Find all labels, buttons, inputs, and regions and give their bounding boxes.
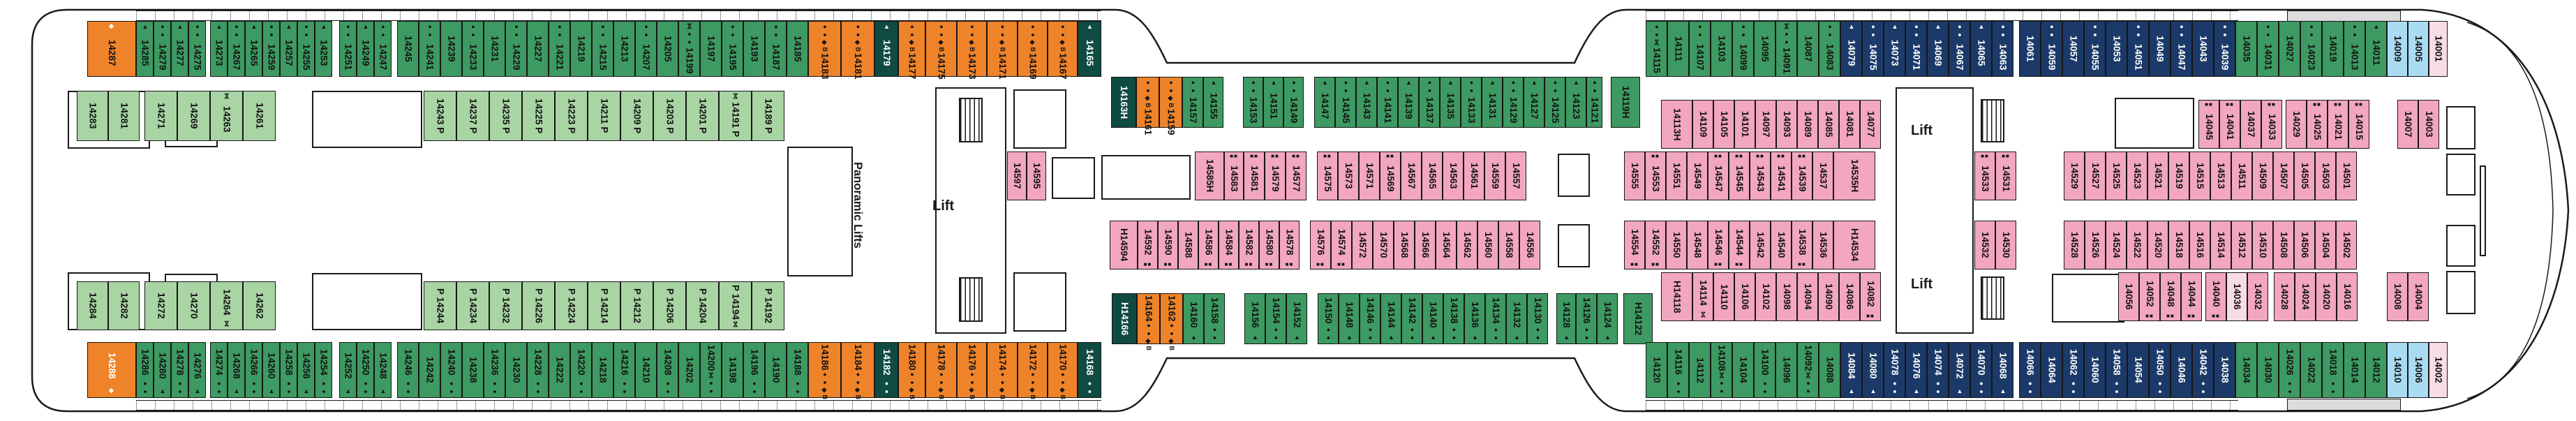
cabin-14116[interactable]: 14116●● [1667,342,1689,398]
cabin-14039[interactable]: ●●14039 [2214,21,2235,77]
cabin-14169[interactable]: ●●◆B14169 [1018,21,1048,77]
cabin-14531[interactable]: ■■14531 [1995,152,2016,200]
cabin-14134[interactable]: 14134●● [1485,293,1506,344]
cabin-14125[interactable]: ●●14125 [1544,77,1565,128]
cabin-14575[interactable]: ■■14575 [1317,152,1338,200]
cabin-14180[interactable]: 14180●●◆B [898,342,925,398]
cabin-14053[interactable]: 14053 [2106,21,2127,77]
cabin-14220[interactable]: 14220●● [570,342,592,398]
cabin-14277[interactable]: ▲14277 [171,21,188,77]
cabin-14101[interactable]: 14101 [1734,100,1755,149]
cabin-14131[interactable]: ▲14131 [1482,77,1503,128]
cabin-14153[interactable]: ●●14153 [1243,77,1263,128]
cabin-14032[interactable]: 14032 [2247,272,2268,321]
cabin-14010[interactable]: 14010 [2387,342,2408,398]
cabin-14283[interactable]: 14283 [77,91,108,141]
cabin-14578[interactable]: 14578■■ [1279,221,1300,269]
cabin-14272[interactable]: 14272 [144,281,177,330]
cabin-14278[interactable]: 14278●● [171,342,188,398]
cabin-14141[interactable]: ●●14141 [1377,77,1398,128]
cabin-14181[interactable]: ●●◆B14181 [841,21,874,77]
cabin-14164[interactable]: 14164●●◆B [1137,293,1160,344]
cabin-14022[interactable]: 14022 [2300,342,2322,398]
cabin-14573[interactable]: 14573 [1338,152,1359,200]
cabin-14099[interactable]: ●●14099 [1732,21,1754,77]
cabin-14216[interactable]: 14216●● [613,342,635,398]
cabin-14204[interactable]: P 14204 [686,281,719,330]
cabin-14120[interactable]: 14120 [1646,342,1667,398]
cabin-14148[interactable]: 14148▲ [1339,293,1360,344]
cabin-14244[interactable]: P 14244 [424,281,456,330]
cabin-14189[interactable]: 14189 P [752,91,784,141]
cabin-14071[interactable]: ●●14071 [1905,21,1927,77]
cabin-14588[interactable]: 14588 [1178,221,1198,269]
cabin-14562[interactable]: 14562 [1457,221,1477,269]
cabin-14583[interactable]: ■■14583 [1224,152,1244,200]
cabin-14188[interactable]: 14188●● [787,342,808,398]
cabin-14533[interactable]: ■■14533 [1974,152,1995,200]
cabin-14553[interactable]: ■■14553 [1645,152,1666,200]
cabin-14260[interactable]: 14260▲ [262,342,280,398]
cabin-14170[interactable]: 14170●●◆B [1048,342,1078,398]
cabin-14005[interactable]: 14005 [2408,21,2429,77]
cabin-14057[interactable]: 14057 [2062,21,2084,77]
cabin-14525[interactable]: 14525 [2106,152,2127,200]
cabin-14597[interactable]: 14597 [1007,152,1027,200]
cabin-14024[interactable]: 14024 [2295,272,2316,321]
cabin-14270[interactable]: 14270 [177,281,210,330]
cabin-14046[interactable]: 14046 [2171,342,2192,398]
cabin-14538[interactable]: 14538■■ [1792,221,1812,269]
cabin-14029[interactable]: 14029 [2286,100,2307,149]
cabin-14186[interactable]: 14186●●◆B [808,342,841,398]
cabin-14062[interactable]: 14062●● [2062,342,2084,398]
cabin-14228[interactable]: 14228●● [527,342,549,398]
cabin-14008[interactable]: 14008 [2387,272,2408,321]
cabin-14159[interactable]: ●●◆B14159 [1159,77,1182,128]
cabin-14173[interactable]: ●●◆B14173 [957,21,987,77]
cabin-14580[interactable]: 14580■■ [1259,221,1279,269]
cabin-14242[interactable]: 14242 [419,342,440,398]
cabin-14055[interactable]: ●●14055 [2084,21,2106,77]
cabin-14060[interactable]: 14060 [2084,342,2106,398]
cabin-14219[interactable]: 14219 [570,21,592,77]
cabin-14083[interactable]: ●●14083 [1819,21,1840,77]
cabin-14273[interactable]: ▲14273 [210,21,228,77]
cabin-14208[interactable]: 14208●● [657,342,678,398]
cabin-14138[interactable]: 14138●● [1443,293,1464,344]
cabin-14090[interactable]: 14090 [1818,272,1839,321]
cabin-14264[interactable]: 14264⋈ [210,281,243,330]
cabin-14211[interactable]: 14211 P [588,91,620,141]
cabin-14243[interactable]: 14243 P [424,91,456,141]
cabin-14146[interactable]: 14146●● [1360,293,1380,344]
cabin-14150[interactable]: 14150●● [1318,293,1339,344]
cabin-14023[interactable]: ●●14023 [2300,21,2322,77]
cabin-14165[interactable]: ▲14165 [1078,21,1101,77]
cabin-14508[interactable]: 14508 [2273,221,2294,269]
cabin-14196[interactable]: 14196●● [743,342,765,398]
cabin-14550[interactable]: 14550 [1666,221,1687,269]
cabin-14163[interactable]: 14163H [1111,77,1136,128]
cabin-14520[interactable]: 14520 [2147,221,2168,269]
cabin-14248[interactable]: 14248▲ [374,342,392,398]
cabin-14174[interactable]: 14174●●◆B [987,342,1018,398]
cabin-14259[interactable]: ●●14259 [262,21,280,77]
cabin-14077[interactable]: 14077 [1860,100,1881,149]
cabin-14210[interactable]: 14210 [635,342,657,398]
cabin-14503[interactable]: 14503 [2315,152,2336,200]
cabin-14254[interactable]: 14254●● [315,342,332,398]
cabin-14111[interactable]: 14111 [1667,21,1689,77]
cabin-14568[interactable]: 14568 [1394,221,1415,269]
cabin-14576[interactable]: 14576■■ [1310,221,1331,269]
cabin-14177[interactable]: ●●◆B14177 [898,21,925,77]
cabin-14522[interactable]: 14522 [2127,221,2147,269]
cabin-14566[interactable]: 14566 [1415,221,1436,269]
cabin-14261[interactable]: 14261 [243,91,276,141]
cabin-14139[interactable]: ▲14139 [1398,77,1419,128]
cabin-14561[interactable]: 14561 [1464,152,1484,200]
cabin-14247[interactable]: ●●14247 [374,21,392,77]
cabin-14560[interactable]: 14560 [1477,221,1498,269]
cabin-14558[interactable]: 14558 [1498,221,1519,269]
cabin-14246[interactable]: 14246●● [397,342,419,398]
cabin-14213[interactable]: 14213 [613,21,635,77]
cabin-14585[interactable]: 14585H [1195,152,1224,200]
cabin-14085[interactable]: 14085 [1818,100,1839,149]
cabin-14269[interactable]: 14269 [177,91,210,141]
cabin-14232[interactable]: P 14232 [489,281,522,330]
cabin-14223[interactable]: 14223 P [555,91,588,141]
cabin-14113[interactable]: 14113H [1661,100,1692,149]
cabin-14225[interactable]: 14225 P [522,91,555,141]
cabin-14042[interactable]: 14042●● [2192,342,2214,398]
cabin-14066[interactable]: 14066●● [2019,342,2041,398]
cabin-14094[interactable]: 14094 [1797,272,1818,321]
cabin-14080[interactable]: 14080▲ [1862,342,1884,398]
cabin-14544[interactable]: 14544■■ [1729,221,1750,269]
cabin-14262[interactable]: 14262 [243,281,276,330]
cabin-14152[interactable]: 14152▲ [1286,293,1307,344]
cabin-14234[interactable]: P 14234 [456,281,489,330]
cabin-14162[interactable]: 14162●●◆B [1160,293,1183,344]
cabin-14505[interactable]: 14505 [2294,152,2315,200]
cabin-14030[interactable]: 14030 [2257,342,2279,398]
cabin-14112[interactable]: 14112 [1689,342,1711,398]
cabin-14093[interactable]: 14093 [1776,100,1797,149]
cabin-14282[interactable]: 14282 [108,281,140,330]
cabin-14557[interactable]: 14557 [1505,152,1526,200]
cabin-14089[interactable]: 14089 [1797,100,1818,149]
cabin-14107[interactable]: ●●14107 [1689,21,1711,77]
cabin-14215[interactable]: ●●14215 [592,21,613,77]
cabin-14096[interactable]: 14096 [1775,342,1797,398]
cabin-14002[interactable]: 14002 [2429,342,2448,398]
cabin-14192[interactable]: P 14192 [752,281,784,330]
cabin-14128[interactable]: 14128▲ [1556,293,1576,344]
cabin-14176[interactable]: 14176●●◆B [957,342,987,398]
cabin-14082[interactable]: 14082■■ [1860,272,1881,321]
cabin-14087[interactable]: 14087 [1797,21,1819,77]
cabin-14274[interactable]: 14274●● [210,342,228,398]
cabin-14257[interactable]: ▲14257 [280,21,297,77]
cabin-14178[interactable]: 14178●●◆B [925,342,957,398]
cabin-14236[interactable]: 14236●● [484,342,505,398]
cabin-14011[interactable]: ▲14011 [2365,21,2387,77]
cabin-14068[interactable]: 14068▲ [1992,342,2013,398]
cabin-14014[interactable]: 14014 [2344,342,2365,398]
cabin-14127[interactable]: ▲14127 [1524,77,1544,128]
cabin-14063[interactable]: ●●14063 [1992,21,2013,77]
cabin-14044[interactable]: 14044■■ [2181,272,2202,321]
cabin-14518[interactable]: 14518 [2168,221,2189,269]
cabin-14076[interactable]: 14076▲ [1905,342,1927,398]
cabin-14540[interactable]: 14540 [1771,221,1792,269]
cabin-14167[interactable]: ●●◆B14167 [1048,21,1078,77]
cabin-14534[interactable]: H14534 [1833,221,1875,269]
cabin-14250[interactable]: 14250●● [357,342,374,398]
cabin-14130[interactable]: 14130●● [1527,293,1548,344]
cabin-14104[interactable]: 14104 [1732,342,1754,398]
cabin-14079[interactable]: ▲14079 [1840,21,1862,77]
cabin-14122[interactable]: H14122 [1623,293,1653,344]
cabin-14175[interactable]: ●●◆B14175 [925,21,957,77]
cabin-14006[interactable]: 14006 [2408,342,2429,398]
cabin-14084[interactable]: 14084▲ [1840,342,1862,398]
cabin-14054[interactable]: 14054 [2127,342,2149,398]
cabin-14058[interactable]: 14058●● [2106,342,2127,398]
cabin-14136[interactable]: 14136▲ [1464,293,1485,344]
cabin-14515[interactable]: 14515 [2189,152,2210,200]
cabin-14551[interactable]: 14551 [1666,152,1687,200]
cabin-14240[interactable]: 14240●● [440,342,462,398]
cabin-14038[interactable]: 14038 [2214,342,2235,398]
cabin-14549[interactable]: 14549 [1687,152,1708,200]
cabin-14249[interactable]: ▲14249 [357,21,374,77]
cabin-14524[interactable]: 14524 [2106,221,2127,269]
cabin-14018[interactable]: 14018●● [2322,342,2344,398]
cabin-14221[interactable]: ●●14221 [549,21,570,77]
cabin-14195[interactable]: ●●14195 [722,21,743,77]
cabin-14267[interactable]: ●●14267 [228,21,245,77]
cabin-14255[interactable]: ●●14255 [297,21,315,77]
cabin-14145[interactable]: ●●14145 [1335,77,1356,128]
cabin-14253[interactable]: ▲14253 [315,21,332,77]
cabin-14532[interactable]: 14532 [1974,221,1995,269]
cabin-14231[interactable]: 14231 [484,21,505,77]
cabin-14020[interactable]: 14020 [2316,272,2337,321]
cabin-14073[interactable]: ▲14073 [1884,21,1905,77]
cabin-14577[interactable]: ■■14577 [1286,152,1306,200]
cabin-14207[interactable]: ●●14207 [635,21,657,77]
cabin-14200[interactable]: 14200⋈●● [700,342,722,398]
cabin-14149[interactable]: ●●14149 [1283,77,1304,128]
cabin-14004[interactable]: 14004 [2408,272,2429,321]
cabin-14271[interactable]: 14271 [144,91,177,141]
cabin-14555[interactable]: 14555 [1624,152,1645,200]
cabin-14158[interactable]: 14158●● [1204,293,1225,344]
cabin-14237[interactable]: 14237 P [456,91,489,141]
cabin-14070[interactable]: 14070●● [1970,342,1992,398]
cabin-14539[interactable]: ■■14539 [1792,152,1812,200]
cabin-14559[interactable]: 14559 [1484,152,1505,200]
cabin-14013[interactable]: ●●14013 [2344,21,2365,77]
cabin-14554[interactable]: 14554■■ [1624,221,1645,269]
cabin-14100[interactable]: 14100●● [1754,342,1775,398]
cabin-14218[interactable]: 14218 [592,342,613,398]
cabin-14285[interactable]: ▲14285 [136,21,154,77]
cabin-14521[interactable]: 14521 [2147,152,2168,200]
cabin-14056[interactable]: 14056 [2118,272,2139,321]
cabin-14279[interactable]: ●●14279 [154,21,171,77]
cabin-14199[interactable]: ⋈●●14199 [678,21,700,77]
cabin-14074[interactable]: 14074●● [1927,342,1949,398]
cabin-14156[interactable]: 14156▲ [1244,293,1265,344]
cabin-14594[interactable]: H14594 [1110,221,1138,269]
cabin-14510[interactable]: 14510 [2252,221,2273,269]
cabin-14224[interactable]: P 14224 [555,281,588,330]
cabin-14543[interactable]: ■■14543 [1750,152,1771,200]
cabin-14078[interactable]: 14078●● [1884,342,1905,398]
cabin-14202[interactable]: 14202 [678,342,700,398]
cabin-14206[interactable]: P 14206 [653,281,686,330]
cabin-14193[interactable]: 14193 [743,21,765,77]
cabin-14155[interactable]: ▲14155 [1203,77,1223,128]
cabin-14168[interactable]: 14168●● [1078,342,1101,398]
cabin-14040[interactable]: 14040■■ [2205,272,2226,321]
cabin-14214[interactable]: P 14214 [588,281,620,330]
cabin-14123[interactable]: ▲14123 [1565,77,1586,128]
cabin-14229[interactable]: ●●14229 [505,21,527,77]
cabin-14265[interactable]: ▲14265 [245,21,262,77]
cabin-14140[interactable]: 14140▲ [1422,293,1443,344]
cabin-14142[interactable]: 14142●● [1401,293,1422,344]
cabin-14115[interactable]: ●●⋈14115 [1646,21,1667,77]
cabin-14102[interactable]: 14102 [1755,272,1776,321]
cabin-14507[interactable]: 14507 [2273,152,2294,200]
cabin-14201[interactable]: 14201 P [686,91,719,141]
cabin-14197[interactable]: 14197 [700,21,722,77]
cabin-14108[interactable]: 14108⋈●● [1711,342,1732,398]
cabin-14280[interactable]: 14280▲ [154,342,171,398]
cabin-14072[interactable]: 14072▲ [1949,342,1970,398]
cabin-14501[interactable]: 14501 [2336,152,2357,200]
cabin-14097[interactable]: 14097 [1755,100,1776,149]
cabin-14069[interactable]: ▲14069 [1927,21,1949,77]
cabin-14035[interactable]: 14035 [2235,21,2257,77]
cabin-14565[interactable]: 14565 [1422,152,1443,200]
cabin-14015[interactable]: ■■14015 [2348,100,2369,149]
cabin-14584[interactable]: 14584■■ [1219,221,1239,269]
cabin-14546[interactable]: 14546■■ [1708,221,1729,269]
cabin-14209[interactable]: 14209 P [620,91,653,141]
cabin-14048[interactable]: 14048■■ [2160,272,2181,321]
cabin-14031[interactable]: ●●14031 [2257,21,2279,77]
cabin-14160[interactable]: 14160▲ [1183,293,1204,344]
cabin-14041[interactable]: ■■14041 [2219,100,2240,149]
cabin-14179[interactable]: ▲14179 [874,21,898,77]
cabin-14513[interactable]: 14513 [2210,152,2231,200]
cabin-14007[interactable]: 14007 [2397,100,2418,149]
cabin-14036[interactable]: 14036 [2226,272,2247,321]
cabin-14190[interactable]: 14190 [765,342,787,398]
cabin-14026[interactable]: 14026●● [2279,342,2300,398]
cabin-14091[interactable]: ⋈●●14091 [1775,21,1797,77]
cabin-14184[interactable]: 14184●●◆B [841,342,874,398]
cabin-14574[interactable]: 14574■■ [1331,221,1352,269]
cabin-14059[interactable]: ●●14059 [2041,21,2062,77]
cabin-14065[interactable]: ▲14065 [1970,21,1992,77]
cabin-14187[interactable]: ●●14187 [765,21,787,77]
cabin-14119[interactable]: 14119H [1611,77,1640,128]
cabin-14590[interactable]: 14590■■ [1158,221,1178,269]
cabin-14194[interactable]: P 14194⋈ [719,281,752,330]
cabin-14043[interactable]: 14043 [2192,21,2214,77]
cabin-14126[interactable]: 14126●● [1576,293,1597,344]
cabin-14564[interactable]: 14564 [1436,221,1457,269]
cabin-14144[interactable]: 14144▲ [1380,293,1401,344]
cabin-14530[interactable]: 14530 [1995,221,2016,269]
cabin-14198[interactable]: 14198 [722,342,743,398]
cabin-14226[interactable]: P 14226 [522,281,555,330]
cabin-14275[interactable]: ●●14275 [188,21,206,77]
cabin-14151[interactable]: ▲14151 [1263,77,1283,128]
cabin-14526[interactable]: 14526 [2085,221,2106,269]
cabin-14266[interactable]: 14266●● [245,342,262,398]
cabin-14528[interactable]: 14528 [2064,221,2085,269]
cabin-14110[interactable]: 14110 [1713,272,1734,321]
cabin-14172[interactable]: 14172●●◆B [1018,342,1048,398]
cabin-14571[interactable]: 14571 [1359,152,1380,200]
cabin-14556[interactable]: 14556 [1519,221,1540,269]
cabin-14537[interactable]: 14537 [1812,152,1833,200]
cabin-14047[interactable]: ●●14047 [2171,21,2192,77]
cabin-14586[interactable]: 14586■■ [1198,221,1219,269]
cabin-14582[interactable]: 14582■■ [1239,221,1259,269]
cabin-14235[interactable]: 14235 P [489,91,522,141]
cabin-14045[interactable]: ■■14045 [2198,100,2219,149]
cabin-14132[interactable]: 14132▲ [1506,293,1527,344]
cabin-14016[interactable]: 14016 [2337,272,2358,321]
cabin-14581[interactable]: ■■14581 [1244,152,1265,200]
cabin-14124[interactable]: 14124▲ [1597,293,1618,344]
cabin-14203[interactable]: 14203 P [653,91,686,141]
cabin-14276[interactable]: 14276▲ [188,342,206,398]
cabin-14509[interactable]: 14509 [2252,152,2273,200]
cabin-14222[interactable]: 14222 [549,342,570,398]
cabin-14284[interactable]: 14284 [77,281,108,330]
cabin-14129[interactable]: ●●14129 [1503,77,1524,128]
cabin-14118[interactable]: H14118 [1661,272,1692,321]
cabin-14171[interactable]: ●●◆B14171 [987,21,1018,77]
cabin-14502[interactable]: 14502 [2336,221,2357,269]
cabin-14268[interactable]: 14268▲ [228,342,245,398]
cabin-14205[interactable]: 14205 [657,21,678,77]
cabin-14137[interactable]: ●●14137 [1419,77,1440,128]
cabin-14506[interactable]: 14506 [2294,221,2315,269]
cabin-14092[interactable]: 14092⋈●● [1797,342,1819,398]
cabin-14547[interactable]: ■■14547 [1708,152,1729,200]
cabin-14595[interactable]: 14595 [1027,152,1046,200]
cabin-14185[interactable]: 14185 [787,21,808,77]
cabin-14166[interactable]: H14166 [1112,293,1137,344]
cabin-14516[interactable]: 14516 [2189,221,2210,269]
cabin-14527[interactable]: 14527 [2085,152,2106,200]
cabin-14067[interactable]: ●●14067 [1949,21,1970,77]
cabin-14511[interactable]: 14511 [2231,152,2252,200]
cabin-14241[interactable]: ●●14241 [419,21,440,77]
